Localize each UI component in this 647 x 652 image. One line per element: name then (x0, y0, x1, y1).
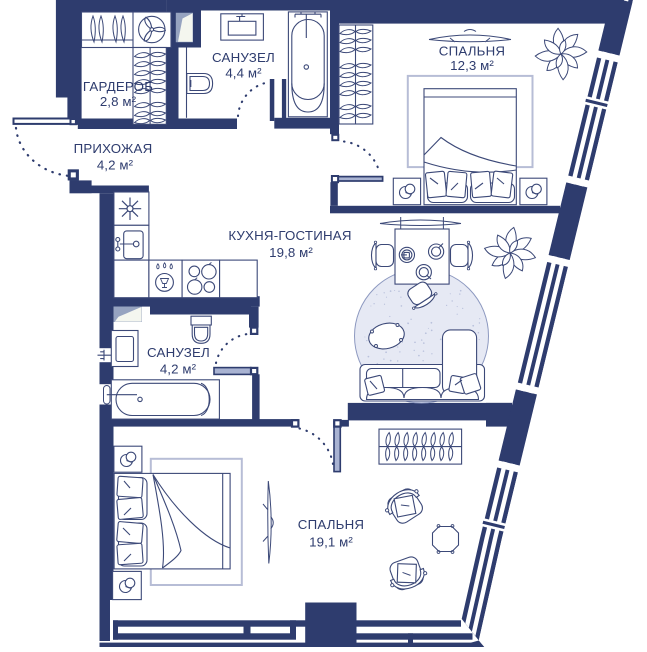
svg-text:ПРИХОЖАЯ: ПРИХОЖАЯ (74, 141, 153, 156)
svg-text:19,1 м²: 19,1 м² (309, 535, 353, 550)
svg-text:СПАЛЬНЯ: СПАЛЬНЯ (439, 44, 505, 59)
svg-text:2,8 м²: 2,8 м² (100, 94, 137, 109)
svg-text:19,8 м²: 19,8 м² (269, 245, 313, 260)
svg-text:4,2 м²: 4,2 м² (97, 158, 134, 173)
svg-text:САНУЗЕЛ: САНУЗЕЛ (212, 50, 275, 65)
svg-text:САНУЗЕЛ: САНУЗЕЛ (147, 345, 210, 360)
svg-text:12,3 м²: 12,3 м² (450, 58, 494, 73)
svg-text:4,2 м²: 4,2 м² (160, 362, 197, 377)
svg-text:СПАЛЬНЯ: СПАЛЬНЯ (298, 517, 364, 532)
svg-text:КУХНЯ-ГОСТИНАЯ: КУХНЯ-ГОСТИНАЯ (228, 228, 351, 243)
svg-text:ГАРДЕРОБ: ГАРДЕРОБ (83, 79, 153, 94)
svg-text:4,4 м²: 4,4 м² (225, 66, 262, 81)
